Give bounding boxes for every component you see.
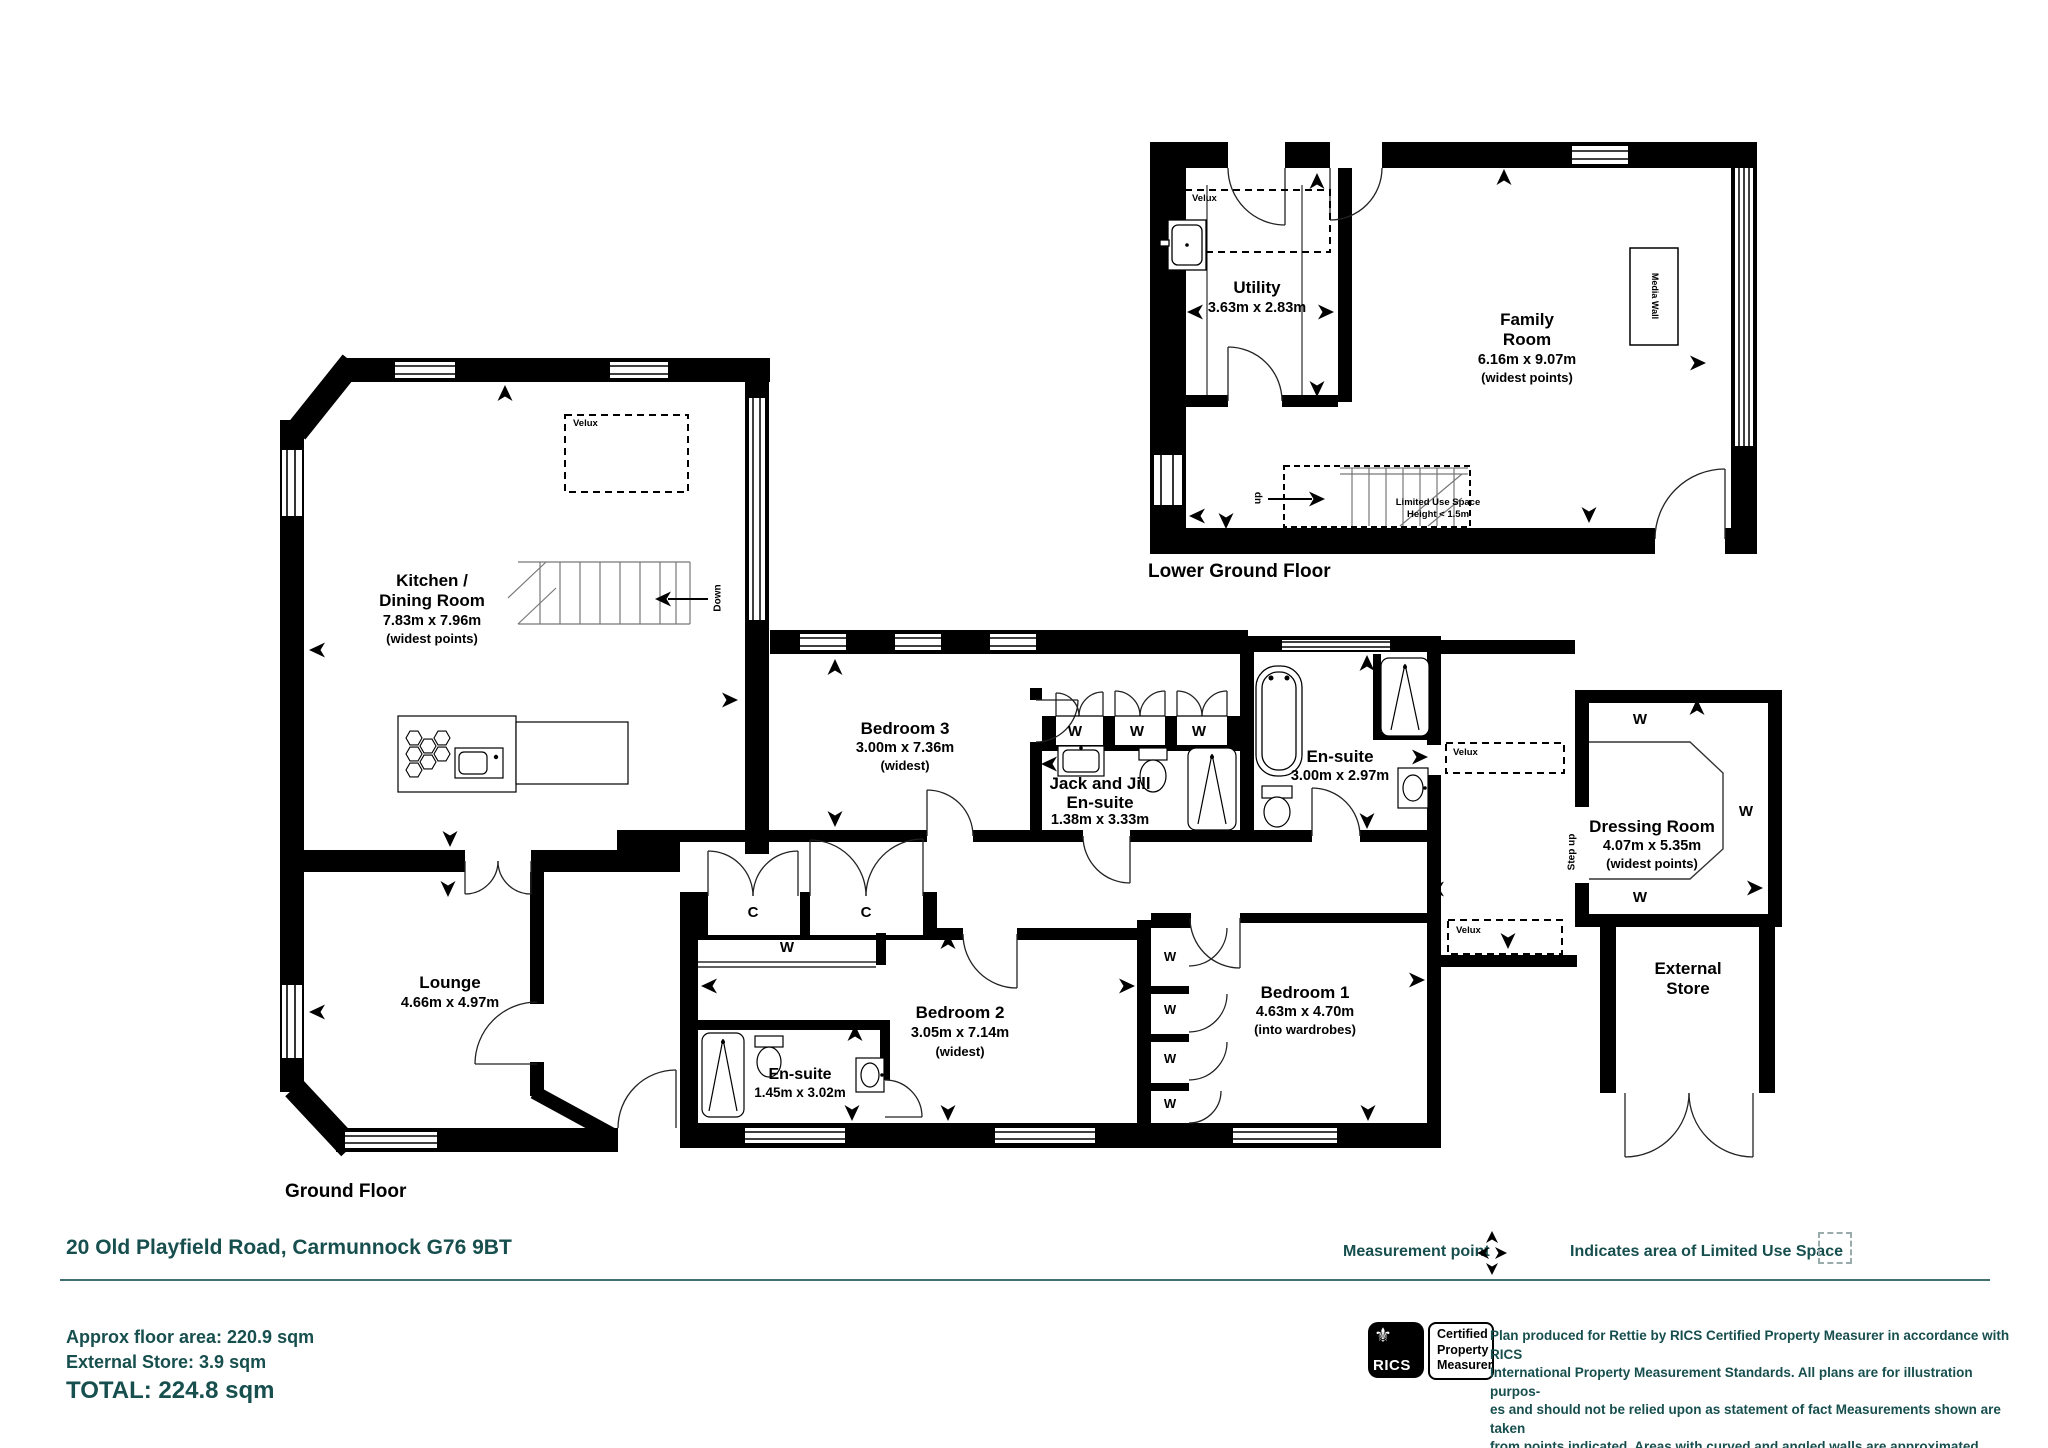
disclaimer-line: International Property Measurement Stand…	[1490, 1364, 2014, 1401]
ground-floor-title: Ground Floor	[285, 1182, 406, 1203]
approx-floor-area: Approx floor area: 220.9 sqm	[66, 1327, 314, 1348]
total-area: TOTAL: 224.8 sqm	[66, 1377, 275, 1405]
media-wall-label: Media Wall	[1649, 273, 1659, 319]
lower-ground-floor-plan	[1150, 142, 1757, 554]
stairs-down-label: Down	[713, 584, 724, 611]
room-label-utility-dims: 3.63m x 2.83m	[1208, 301, 1306, 317]
room-label-lounge-name: Lounge	[419, 974, 480, 993]
room-label-family-name2: Room	[1503, 331, 1551, 350]
ensuite-sink-icon	[1398, 768, 1428, 808]
footer-divider	[60, 1279, 1990, 1281]
limited-use-legend-icon	[1818, 1232, 1852, 1264]
wardrobe-label: W	[1164, 1097, 1176, 1111]
room-label-family-dims: 6.16m x 9.07m	[1478, 353, 1576, 369]
stairs-up-label: up	[1253, 492, 1264, 504]
limited-use-legend-label: Indicates area of Limited Use Space	[1570, 1243, 1843, 1261]
room-label-ensuite2-name: En-suite	[768, 1066, 831, 1084]
room-label-store-name1: External	[1654, 960, 1721, 979]
room-label-ensuite-master-dims: 3.00m x 2.97m	[1291, 769, 1389, 785]
room-label-kitchen-name1: Kitchen /	[396, 572, 468, 591]
ensuite2-sink-icon	[856, 1058, 884, 1092]
rics-certification-badge: ⚜ RICS Certified Property Measurer	[1368, 1322, 1494, 1380]
room-label-bedroom3-note: (widest)	[880, 759, 929, 773]
external-store-area: External Store: 3.9 sqm	[66, 1352, 266, 1373]
bath-icon	[1256, 666, 1302, 776]
plan-disclaimer: Plan produced for Rettie by RICS Certifi…	[1490, 1327, 2014, 1448]
measurement-point-icon	[1470, 1230, 1514, 1276]
room-label-ensuite2-dims: 1.45m x 3.02m	[754, 1086, 846, 1101]
room-label-kitchen-name2: Dining Room	[379, 592, 485, 611]
room-label-bedroom2-note: (widest)	[935, 1045, 984, 1059]
rics-certified-box: Certified Property Measurer	[1428, 1322, 1494, 1380]
room-label-jackjill-name1: Jack and Jill	[1049, 775, 1150, 794]
room-label-bedroom1-dims: 4.63m x 4.70m	[1256, 1005, 1354, 1021]
rics-lion-icon: ⚜	[1374, 1326, 1392, 1346]
wardrobe-label: W	[780, 940, 794, 957]
floorplan-drawing	[0, 0, 2048, 1448]
room-label-family-name1: Family	[1500, 311, 1554, 330]
wardrobe-label: W	[1739, 804, 1753, 821]
jackjill-sink-icon	[1058, 746, 1104, 776]
wardrobe-label: W	[1068, 724, 1082, 741]
stairs-down-arrow	[655, 592, 708, 607]
gf-door-arcs	[465, 691, 1753, 1157]
wardrobe-label: W	[1130, 724, 1144, 741]
room-label-bedroom2-name: Bedroom 2	[916, 1004, 1005, 1023]
wardrobe-label: W	[1633, 712, 1647, 729]
wardrobe-label: W	[1164, 1003, 1176, 1017]
velux-label-kitchen: Velux	[573, 419, 598, 429]
lgf-door-arcs	[1228, 168, 1725, 539]
wardrobe-label: W	[1164, 950, 1176, 964]
kitchen-island-icon	[398, 716, 628, 792]
closet-label: C	[861, 905, 872, 922]
room-label-dressing-name: Dressing Room	[1589, 818, 1715, 837]
lgf-measurement-arrows	[1187, 169, 1706, 529]
room-label-bedroom2-dims: 3.05m x 7.14m	[911, 1026, 1009, 1042]
wardrobe-label: W	[1192, 724, 1206, 741]
property-address: 20 Old Playfield Road, Carmunnock G76 9B…	[66, 1236, 512, 1260]
room-label-kitchen-dims: 7.83m x 7.96m	[383, 614, 481, 630]
room-label-bedroom3-dims: 3.00m x 7.36m	[856, 741, 954, 757]
disclaimer-line: Plan produced for Rettie by RICS Certifi…	[1490, 1327, 2014, 1364]
room-label-bedroom3-name: Bedroom 3	[861, 720, 950, 739]
velux-label-corridor2: Velux	[1456, 926, 1481, 936]
step-up-label: Step up	[1567, 834, 1578, 871]
closet-label: C	[748, 905, 759, 922]
disclaimer-line: from points indicated. Areas with curved…	[1490, 1438, 2014, 1448]
lgf-door-gaps	[1228, 142, 1725, 554]
kitchen-stairs	[508, 562, 690, 624]
velux-label-corridor1: Velux	[1453, 748, 1478, 758]
lower-floor-title: Lower Ground Floor	[1148, 562, 1331, 583]
rics-cert-line1: Certified	[1437, 1327, 1492, 1343]
room-label-family-note: (widest points)	[1481, 371, 1573, 385]
rics-logo: ⚜ RICS	[1368, 1322, 1424, 1378]
floorplan-page: Lower Ground Floor Utility 3.63m x 2.83m…	[0, 0, 2048, 1448]
room-label-utility-name: Utility	[1233, 279, 1280, 298]
rics-cert-line2: Property	[1437, 1343, 1492, 1359]
ensuite-shower-icon	[1381, 658, 1429, 736]
measurement-point-label: Measurement point	[1343, 1243, 1490, 1261]
room-label-jackjill-dims: 1.38m x 3.33m	[1051, 813, 1149, 829]
room-label-kitchen-note: (widest points)	[386, 632, 478, 646]
wardrobe-label: W	[1633, 890, 1647, 907]
limited-use-label-1: Limited Use Space	[1396, 498, 1480, 508]
ensuite-toilet-icon	[1262, 786, 1292, 827]
rics-logo-text: RICS	[1373, 1357, 1411, 1374]
wardrobe-label: W	[1164, 1052, 1176, 1066]
ensuite2-shower-icon	[702, 1033, 744, 1117]
ground-floor-plan	[280, 358, 1782, 1157]
room-label-ensuite-master-name: En-suite	[1306, 748, 1373, 767]
room-label-lounge-dims: 4.66m x 4.97m	[401, 996, 499, 1012]
rics-cert-line3: Measurer	[1437, 1358, 1492, 1374]
room-label-dressing-note: (widest points)	[1606, 857, 1698, 871]
jackjill-shower-icon	[1188, 748, 1236, 830]
room-label-bedroom1-name: Bedroom 1	[1261, 984, 1350, 1003]
velux-label-utility: Velux	[1192, 194, 1217, 204]
room-label-dressing-dims: 4.07m x 5.35m	[1603, 839, 1701, 855]
limited-use-label-2: Height < 1.5m	[1407, 510, 1469, 520]
room-label-jackjill-name2: En-suite	[1066, 794, 1133, 813]
disclaimer-line: es and should not be relied upon as stat…	[1490, 1401, 2014, 1438]
stairs-up-arrow	[1268, 492, 1325, 507]
room-label-bedroom1-note: (into wardrobes)	[1254, 1023, 1356, 1037]
room-label-store-name2: Store	[1666, 980, 1709, 999]
